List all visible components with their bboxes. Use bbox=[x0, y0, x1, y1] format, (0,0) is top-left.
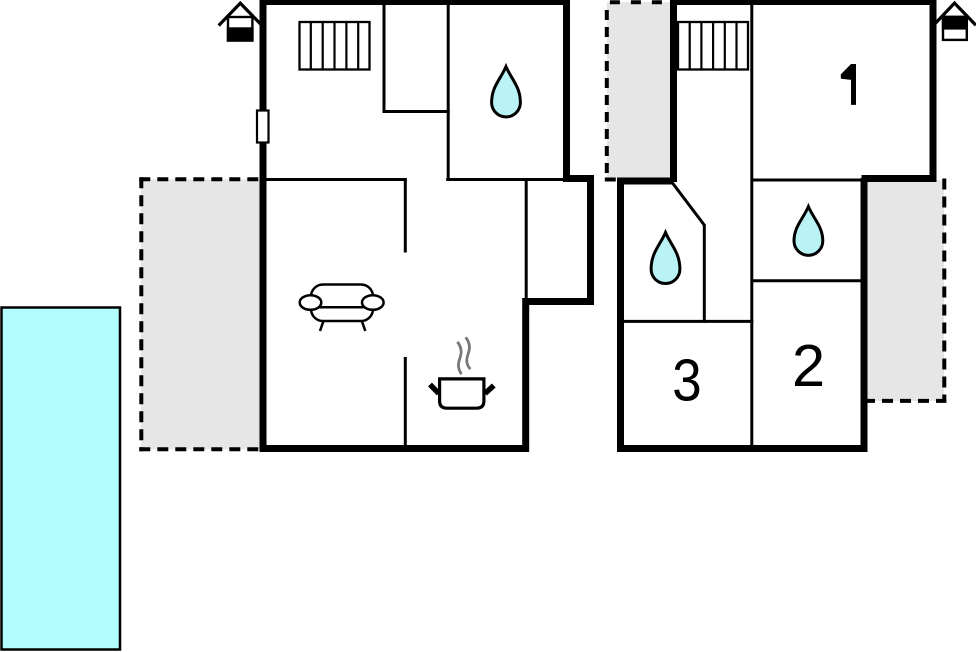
svg-text:2: 2 bbox=[792, 332, 825, 399]
svg-text:3: 3 bbox=[672, 347, 701, 414]
